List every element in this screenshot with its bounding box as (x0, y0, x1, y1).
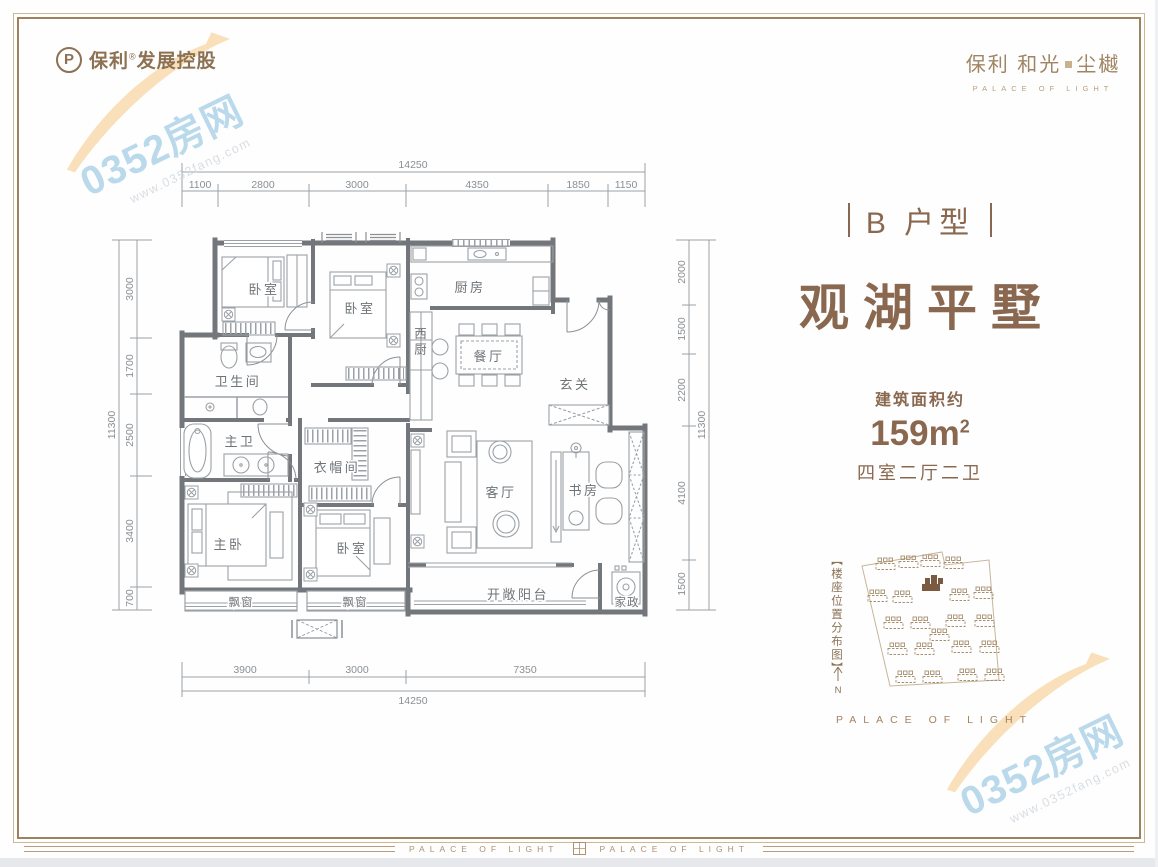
room-bedroom-a: 卧室 (248, 282, 279, 297)
svg-text:4350: 4350 (465, 179, 489, 191)
svg-text:3900: 3900 (233, 664, 257, 676)
footer-line-right (763, 846, 1134, 852)
svg-text:7350: 7350 (513, 664, 537, 676)
footer-brand-left: PALACE OF LIGHT (409, 844, 558, 854)
room-living: 客厅 (485, 485, 516, 500)
site-plan-label: 【楼座位置分布图】 (828, 554, 844, 676)
dim-left-total: 11300 (106, 411, 118, 440)
project-title: 保利 和光尘樾 (955, 48, 1131, 77)
svg-text:1700: 1700 (124, 354, 136, 378)
room-study: 书房 (568, 483, 599, 498)
footer-brand-right: PALACE OF LIGHT (600, 844, 749, 854)
tag-bar-left (848, 203, 850, 237)
room-west-kitchen: 西厨 (410, 327, 429, 358)
site-plan: N (834, 552, 1004, 696)
dim-top-total: 14250 (398, 159, 427, 171)
north-label: N (835, 685, 842, 696)
unit-tag-text: B 户型 (866, 198, 974, 242)
room-bedroom-b: 卧室 (344, 301, 375, 316)
page-edge-bottom (0, 858, 1158, 867)
svg-text:700: 700 (124, 589, 136, 607)
furniture (184, 246, 644, 604)
developer-name: 发展控股 (137, 51, 217, 72)
site-plan-caption: PALACE OF LIGHT (836, 714, 1016, 726)
area-number: 159m (870, 414, 960, 453)
project-name-a: 保利 和光 (966, 54, 1062, 76)
room-dining: 餐厅 (473, 349, 504, 364)
area-label: 建筑面积约 (770, 386, 1070, 410)
layout-description: 四室二厅二卫 (770, 459, 1070, 485)
room-master-bedroom: 主卧 (213, 537, 244, 552)
seal-icon (1065, 61, 1072, 68)
dim-right-total: 11300 (696, 411, 708, 440)
unit-title: 观湖平墅 (784, 268, 1070, 340)
room-bedroom-c: 卧室 (336, 541, 367, 556)
developer-brand: 保利 (89, 51, 129, 72)
floorplan-poster: 14250 1100 2800 3000 4350 1850 1150 3900… (0, 0, 1158, 867)
registered-mark: ® (129, 52, 137, 62)
svg-text:2200: 2200 (676, 378, 688, 402)
svg-text:1100: 1100 (189, 179, 212, 191)
bay-window-label-a: 飘窗 (229, 595, 254, 609)
svg-text:3000: 3000 (345, 664, 369, 676)
highlighted-building (922, 575, 943, 591)
developer-logo: P 保利®发展控股 (56, 46, 217, 73)
project-subtitle: PALACE OF LIGHT (955, 84, 1131, 93)
footer: PALACE OF LIGHT PALACE OF LIGHT (24, 842, 1134, 855)
svg-text:2000: 2000 (676, 260, 688, 284)
site-boundary (862, 552, 999, 686)
room-foyer: 玄关 (559, 377, 590, 392)
svg-text:1500: 1500 (676, 572, 688, 596)
footer-seal-icon (573, 842, 586, 855)
project-name-b: 尘樾 (1076, 54, 1120, 76)
poly-logo-icon: P (56, 47, 82, 73)
svg-text:2800: 2800 (251, 179, 275, 191)
tag-bar-right (990, 203, 992, 237)
svg-text:1500: 1500 (676, 317, 688, 341)
svg-text:2500: 2500 (124, 423, 136, 447)
bay-window-label-b: 飘窗 (343, 595, 368, 609)
svg-text:4100: 4100 (676, 481, 688, 505)
room-bathroom: 卫生间 (215, 374, 262, 389)
svg-text:3400: 3400 (124, 519, 136, 543)
dim-bottom-total: 14250 (398, 695, 427, 707)
room-kitchen: 厨房 (454, 280, 485, 295)
svg-text:3000: 3000 (345, 179, 369, 191)
footer-line-left (24, 846, 395, 852)
area-value: 159m2 (770, 414, 1070, 454)
room-cloakroom: 衣帽间 (314, 460, 361, 475)
svg-text:3000: 3000 (124, 277, 136, 301)
room-master-bath: 主卫 (224, 434, 255, 449)
poly-logo-letter: P (64, 51, 74, 68)
project-logo: 保利 和光尘樾 PALACE OF LIGHT (955, 48, 1131, 93)
area-superscript: 2 (960, 416, 970, 436)
svg-text:1150: 1150 (615, 179, 638, 191)
room-laundry: 家政 (615, 595, 640, 609)
unit-tag: B 户型 (770, 198, 1070, 242)
room-balcony: 开敞阳台 (487, 587, 549, 602)
svg-text:1850: 1850 (566, 179, 590, 191)
unit-info: B 户型 观湖平墅 建筑面积约 159m2 四室二厅二卫 (770, 198, 1070, 485)
developer-logo-text: 保利®发展控股 (89, 46, 217, 73)
